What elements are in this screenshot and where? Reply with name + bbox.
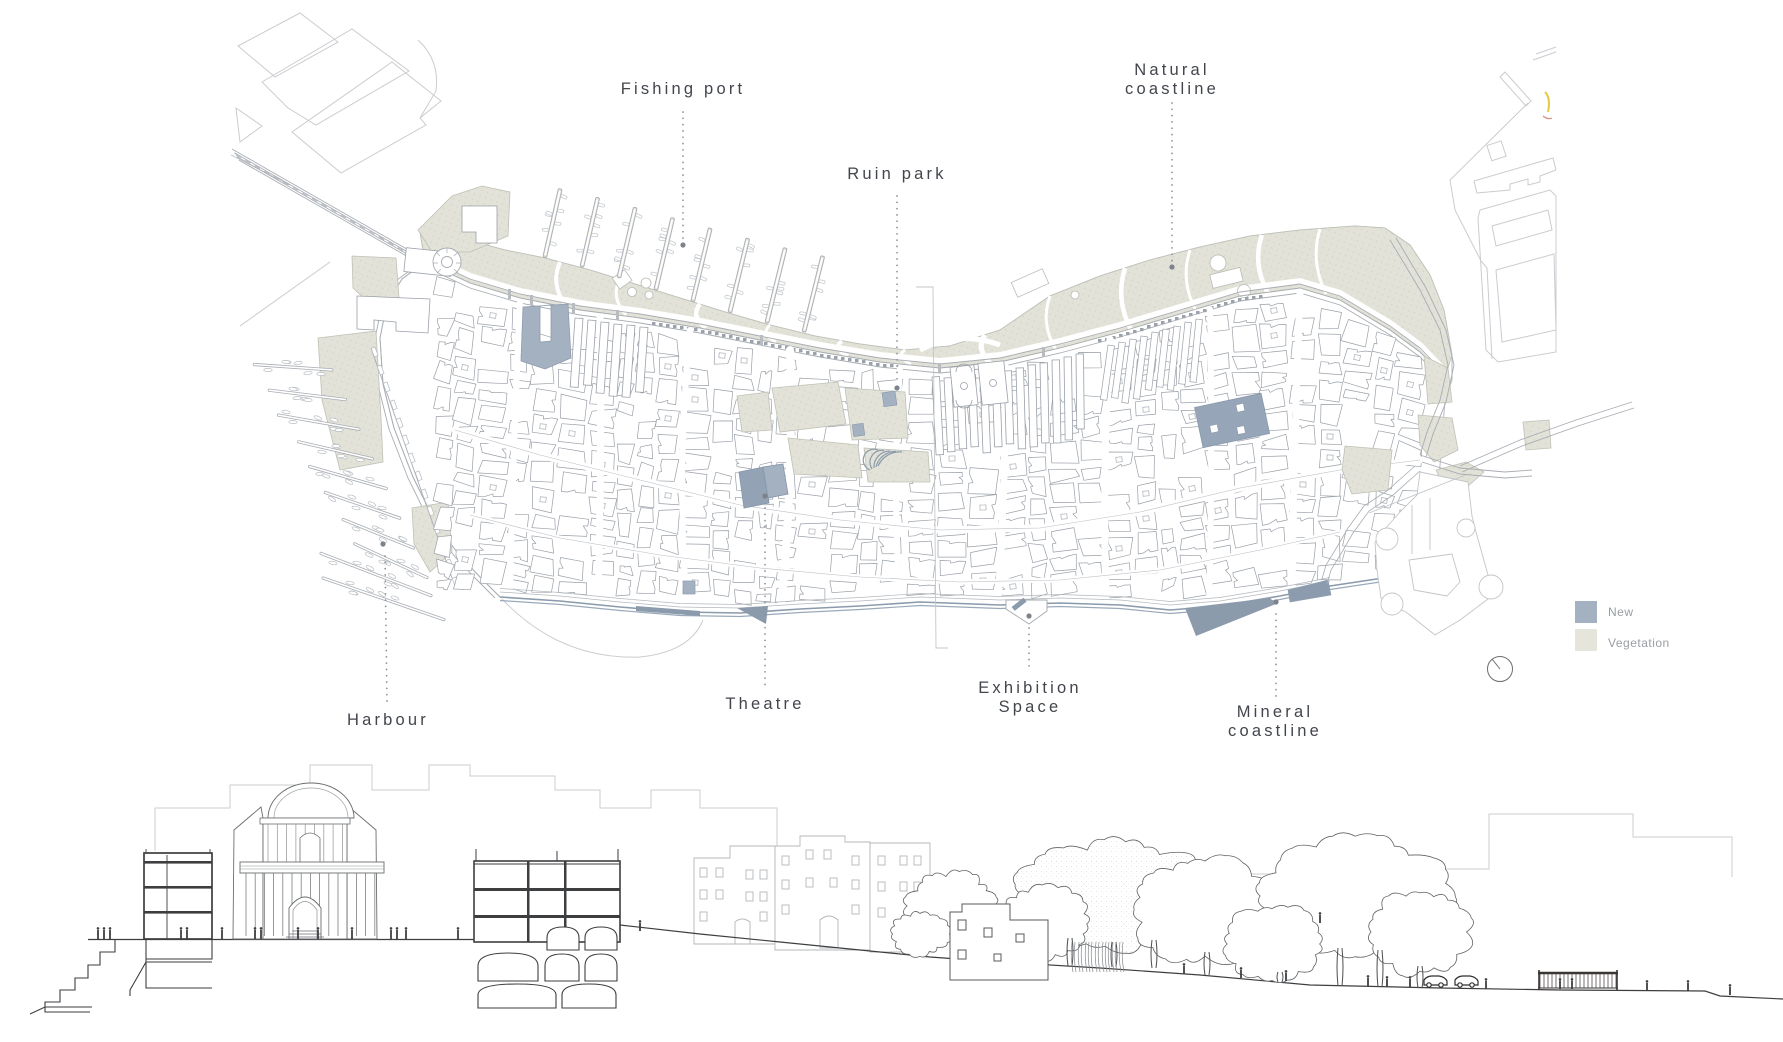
- svg-text:Exhibition: Exhibition: [978, 679, 1082, 697]
- svg-text:New: New: [1608, 605, 1634, 619]
- svg-text:coastline: coastline: [1125, 80, 1219, 98]
- svg-text:Theatre: Theatre: [725, 695, 804, 713]
- svg-text:Fishing port: Fishing port: [621, 80, 746, 98]
- svg-text:Space: Space: [999, 698, 1062, 716]
- svg-text:Mineral: Mineral: [1237, 703, 1314, 721]
- svg-text:coastline: coastline: [1228, 722, 1322, 740]
- svg-text:Harbour: Harbour: [347, 711, 429, 729]
- svg-text:Natural: Natural: [1134, 61, 1210, 79]
- svg-text:Ruin park: Ruin park: [847, 165, 946, 183]
- svg-text:Vegetation: Vegetation: [1608, 636, 1670, 650]
